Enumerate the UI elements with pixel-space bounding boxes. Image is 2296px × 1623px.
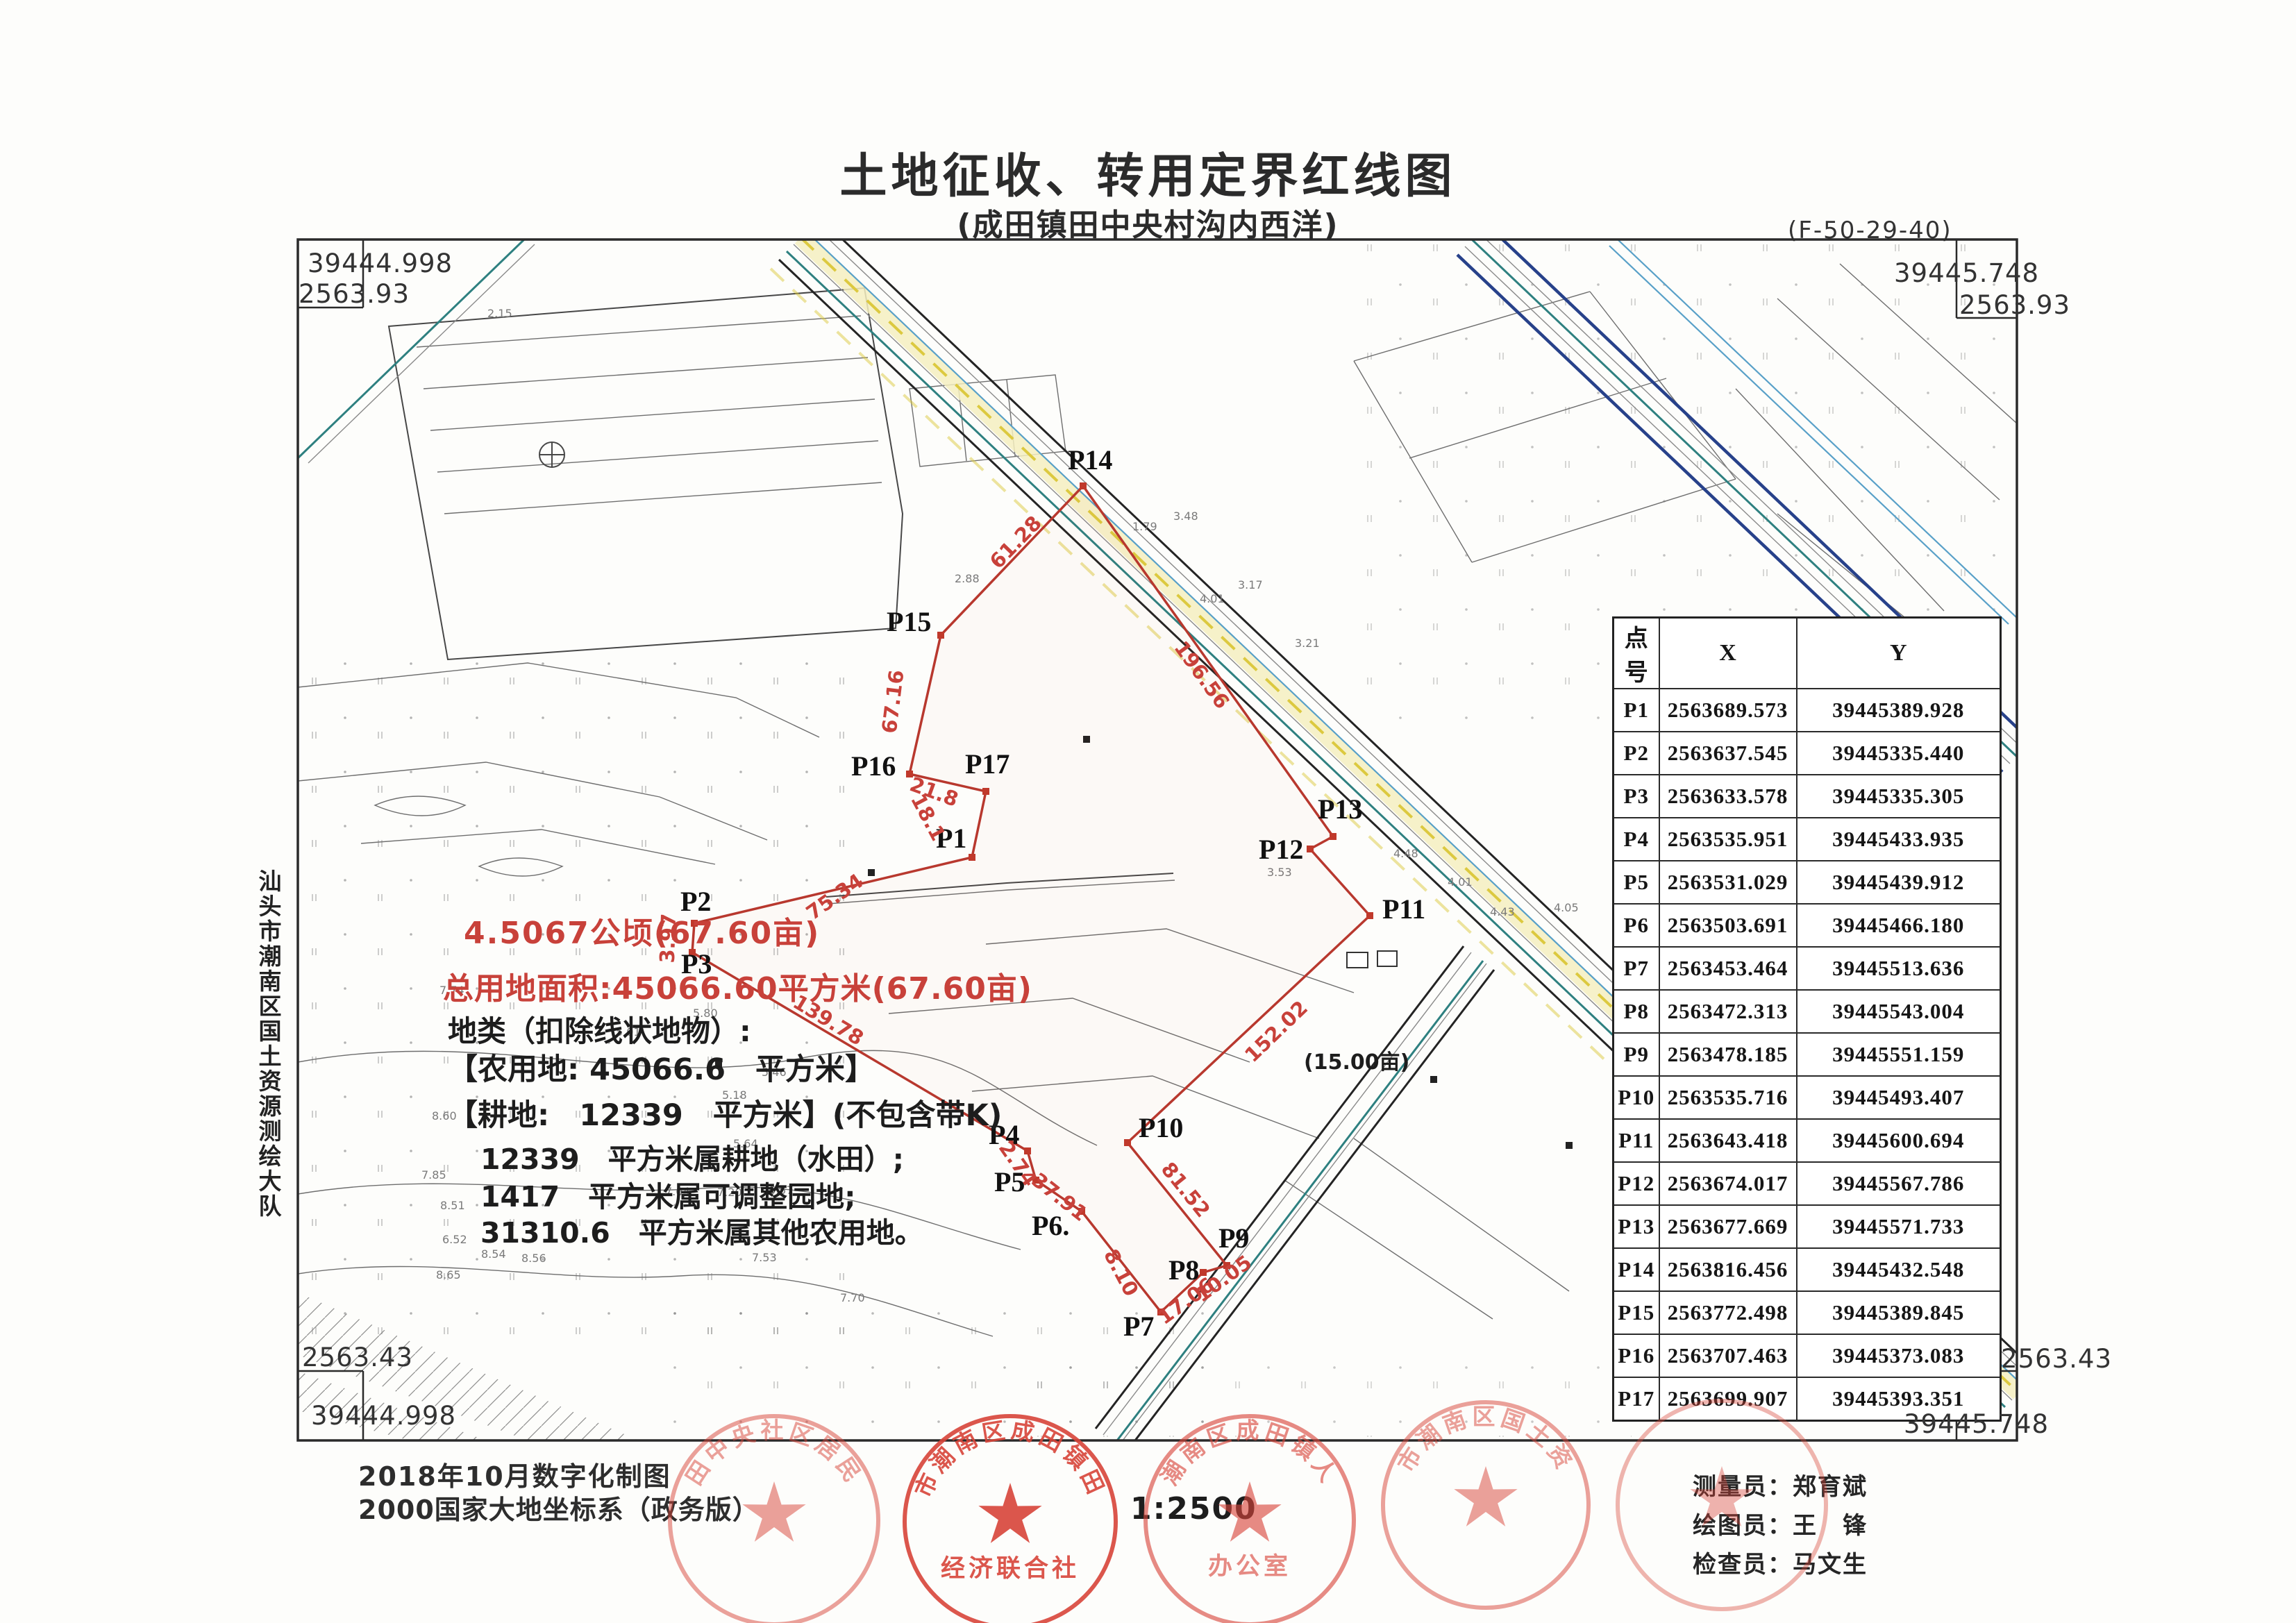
table-row: P162563707.46339445373.083: [1614, 1334, 2001, 1377]
table-row: P82563472.31339445543.004: [1614, 990, 2001, 1033]
table-header-row: 点 号 X Y: [1614, 618, 2001, 689]
col-header-x: X: [1659, 618, 1797, 689]
table-row: P142563816.45639445432.548: [1614, 1248, 2001, 1291]
boundary-point: [1080, 482, 1087, 489]
landclass-other: 31310.6 平方米属其他农用地。: [480, 1209, 923, 1251]
dimension-label: 37.91: [1028, 1168, 1092, 1225]
boundary-point: [1032, 1177, 1039, 1184]
boundary-point: [1024, 1147, 1031, 1154]
spot-height: 8.65: [436, 1268, 461, 1281]
landclass-orchard: 1417 平方米属可调整园地;: [480, 1173, 856, 1215]
dimension-label: 8.10: [1099, 1245, 1143, 1300]
sheet-number: (F-50-29-40): [1788, 217, 1952, 244]
landclass-paddy: 12339 平方米属耕地（水田）;: [480, 1136, 904, 1177]
table-row: P132563677.66939445571.733: [1614, 1205, 2001, 1248]
spot-height: 3.48: [1173, 510, 1198, 523]
page-title: 土地征收、转用定界红线图: [0, 137, 2296, 206]
total-area-label: 总用地面积:45066.60平方米(67.60亩): [443, 964, 1032, 1008]
dimension-label: 67.16: [878, 668, 909, 734]
corner-coord-bottom-right-x: 2563.43: [2001, 1344, 2112, 1374]
map-labels-layer: (15.00亩): [1304, 1050, 1409, 1075]
boundary-point: [1307, 846, 1314, 852]
dimension-label: 61.28: [985, 511, 1046, 573]
boundary-point-label: P16: [851, 750, 896, 782]
spot-height: 3.21: [1295, 637, 1320, 650]
boundary-point-label: P5: [994, 1166, 1025, 1197]
corner-coord-top-left-x: 2563.93: [299, 279, 410, 309]
star-icon: [1454, 1466, 1517, 1527]
spot-height: 7.70: [840, 1291, 865, 1304]
dimension-label: 152.02: [1240, 996, 1312, 1067]
table-row: P152563772.49839445389.845: [1614, 1291, 2001, 1334]
spot-height: 2.15: [487, 307, 512, 320]
spot-height: 4.43: [1490, 905, 1515, 918]
footer-mapping-date: 2018年10月数字化制图: [358, 1455, 671, 1493]
dimension-label: 81.52: [1157, 1157, 1215, 1222]
credit-drafter: 绘图员：王 锋: [1693, 1506, 1868, 1540]
landclass-cultivated: 【耕地: 12339 平方米】(不包含带K): [448, 1091, 1002, 1134]
boundary-point-label: P11: [1382, 893, 1425, 925]
dimension-label: 21.8: [907, 772, 962, 811]
spot-height: 1.79: [1132, 520, 1157, 533]
boundary-point-label: P13: [1318, 793, 1362, 825]
spot-height: 3.17: [1238, 578, 1263, 591]
parcel-area-label: (15.00亩): [1304, 1050, 1409, 1075]
boundary-point-label: P9: [1218, 1222, 1249, 1254]
boundary-point-label: P7: [1123, 1311, 1154, 1342]
spot-height: 3.53: [1267, 866, 1292, 879]
spot-height: 2.88: [955, 572, 980, 585]
stamp-ring: [1383, 1402, 1589, 1608]
landclass-agricultural: 【农用地: 45066.6 平方米】: [448, 1045, 875, 1088]
stamp-ring: [905, 1416, 1116, 1623]
star-icon: [978, 1483, 1041, 1543]
area-hectares-label: 4.5067公顷(67.60亩): [464, 908, 820, 952]
boundary-point: [1223, 1262, 1230, 1269]
corner-coord-bottom-right-y: 39445.748: [1904, 1409, 2049, 1439]
boundary-point: [969, 854, 975, 861]
map-scale: 1:2500: [1130, 1491, 1257, 1527]
dimension-label: 10.05: [1191, 1250, 1256, 1306]
corner-coord-bottom-left-x: 2563.43: [302, 1343, 413, 1372]
scanned-map-document: 土地征收、转用定界红线图 (成田镇田中央村沟内西洋) (F-50-29-40) …: [0, 0, 2296, 1623]
table-row: P32563633.57839445335.305: [1614, 775, 2001, 818]
col-header-y: Y: [1797, 618, 2001, 689]
table-row: P12563689.57339445389.928: [1614, 689, 2001, 732]
spot-height: 4.01: [1448, 875, 1473, 889]
corner-coord-top-right-x: 2563.93: [1959, 290, 2070, 320]
table-row: P72563453.46439445513.636: [1614, 947, 2001, 990]
boundary-point-label: P6.: [1032, 1210, 1069, 1241]
boundary-point: [1124, 1139, 1131, 1146]
boundary-point: [937, 632, 944, 639]
boundary-point-label: P14: [1068, 444, 1112, 476]
corner-coord-top-left-y: 39444.998: [308, 249, 453, 278]
table-row: P52563531.02939445439.912: [1614, 861, 2001, 904]
spot-height: 4.05: [1554, 901, 1579, 914]
credit-surveyor: 测量员：郑育斌: [1693, 1468, 1868, 1502]
boundary-point: [982, 788, 989, 795]
dimension-label: 18.1: [906, 790, 950, 845]
boundary-point-label: P15: [887, 606, 931, 637]
footer-datum: 2000国家大地坐标系（政务版）: [358, 1488, 760, 1527]
spot-height: 8.56: [521, 1252, 546, 1265]
boundary-point-label: P12: [1259, 834, 1303, 865]
boundary-point-label: P1: [936, 823, 966, 854]
spot-height: 8.51: [440, 1199, 465, 1212]
dimension-label: 196.56: [1169, 637, 1234, 714]
spot-height: 7.53: [752, 1251, 777, 1264]
corner-coord-top-right-y: 39445.748: [1894, 258, 2039, 288]
stamp-bottom-text: 经济联合社: [941, 1555, 1080, 1583]
side-organization-label: 汕头市潮南区国土资源测绘大队: [251, 869, 285, 1219]
boundary-point: [1157, 1309, 1164, 1315]
spot-height: 4.01: [1200, 592, 1225, 605]
boundary-point-label: P10: [1139, 1112, 1183, 1143]
credit-checker: 检查员：马文生: [1693, 1545, 1868, 1579]
boundary-point: [1366, 912, 1373, 919]
spot-height: 4.48: [1393, 847, 1418, 860]
landclass-header: 地类（扣除线状地物）:: [448, 1008, 751, 1050]
table-row: P122563674.01739445567.786: [1614, 1162, 2001, 1205]
table-row: P102563535.71639445493.407: [1614, 1076, 2001, 1119]
dimension-label: 2.74: [994, 1136, 1042, 1191]
corner-coord-bottom-left-y: 39444.998: [311, 1401, 456, 1431]
boundary-point: [906, 771, 913, 777]
boundary-point: [1330, 833, 1336, 840]
coordinate-table: 点 号 X Y P12563689.57339445389.928P225636…: [1612, 616, 2002, 1422]
boundary-point-label: P8: [1168, 1254, 1199, 1286]
col-header-point: 点 号: [1614, 618, 1659, 689]
table-row: P22563637.54539445335.440: [1614, 732, 2001, 775]
dimension-label: 17.06: [1153, 1272, 1218, 1329]
spot-height: 6.52: [442, 1233, 467, 1246]
stamp-bottom-text: 办公室: [1208, 1552, 1291, 1581]
table-row: P42563535.95139445433.935: [1614, 818, 2001, 861]
table-row: P62563503.69139445466.180: [1614, 904, 2001, 947]
boundary-point-label: P17: [965, 748, 1009, 780]
table-row: P92563478.18539445551.159: [1614, 1033, 2001, 1076]
table-row: P112563643.41839445600.694: [1614, 1119, 2001, 1162]
spot-height: 7.85: [421, 1168, 446, 1181]
boundary-point: [1200, 1269, 1207, 1276]
boundary-point: [1078, 1208, 1085, 1215]
